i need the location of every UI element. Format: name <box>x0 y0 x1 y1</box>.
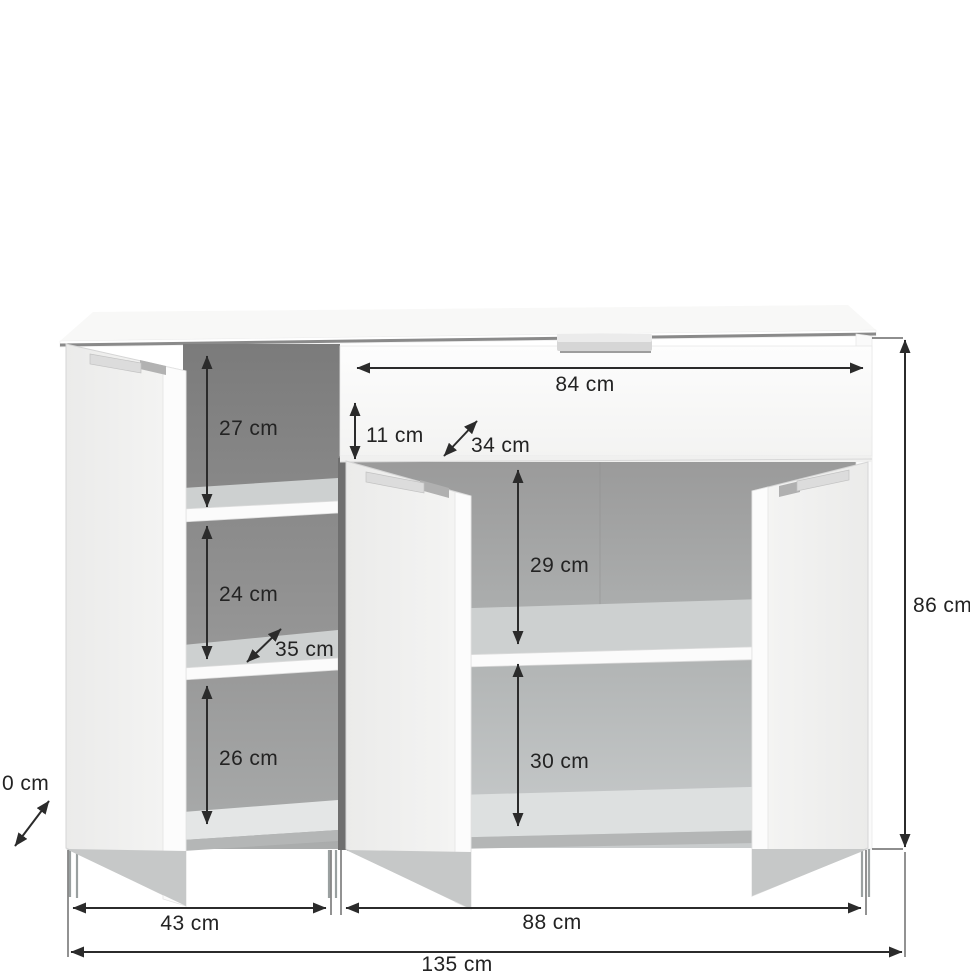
right-door-edge <box>752 487 768 896</box>
dim-label-drawer-height: 11 cm <box>366 424 424 447</box>
dim-overall-height: 86 cm <box>872 338 970 849</box>
cabinet <box>60 305 876 909</box>
left-door-edge <box>163 366 186 906</box>
center-door-face <box>346 461 471 909</box>
top-panel <box>60 305 876 347</box>
dim-label-left-depth: 35 cm <box>275 638 334 661</box>
dim-label-left-top: 27 cm <box>219 417 278 440</box>
dim-label-left-bottom: 26 cm <box>219 747 278 770</box>
drawer-handle-highlight <box>557 334 652 342</box>
dim-label-left-middle: 24 cm <box>219 583 278 606</box>
center-door-edge <box>455 492 471 909</box>
dim-label-right-width: 88 cm <box>522 911 581 934</box>
dim-label-left-width: 43 cm <box>160 912 219 935</box>
dim-depth: 0 cm <box>2 772 49 846</box>
dim-label-drawer-width: 84 cm <box>555 373 614 396</box>
right-door-face <box>752 462 868 896</box>
center-door <box>346 461 471 909</box>
right-door <box>752 462 868 896</box>
diagram-canvas: 84 cm 11 cm 34 cm 27 cm 24 cm 35 cm 26 c… <box>0 0 970 971</box>
left-door <box>66 344 186 906</box>
dim-label-overall-width: 135 cm <box>421 953 492 971</box>
dim-label-overall-height: 86 cm <box>913 594 970 617</box>
furniture-diagram: 84 cm 11 cm 34 cm 27 cm 24 cm 35 cm 26 c… <box>0 0 970 971</box>
dim-label-drawer-depth: 34 cm <box>471 434 530 457</box>
dim-label-right-upper: 29 cm <box>530 554 589 577</box>
dim-label-depth: 0 cm <box>2 772 49 795</box>
dim-label-right-lower: 30 cm <box>530 750 589 773</box>
